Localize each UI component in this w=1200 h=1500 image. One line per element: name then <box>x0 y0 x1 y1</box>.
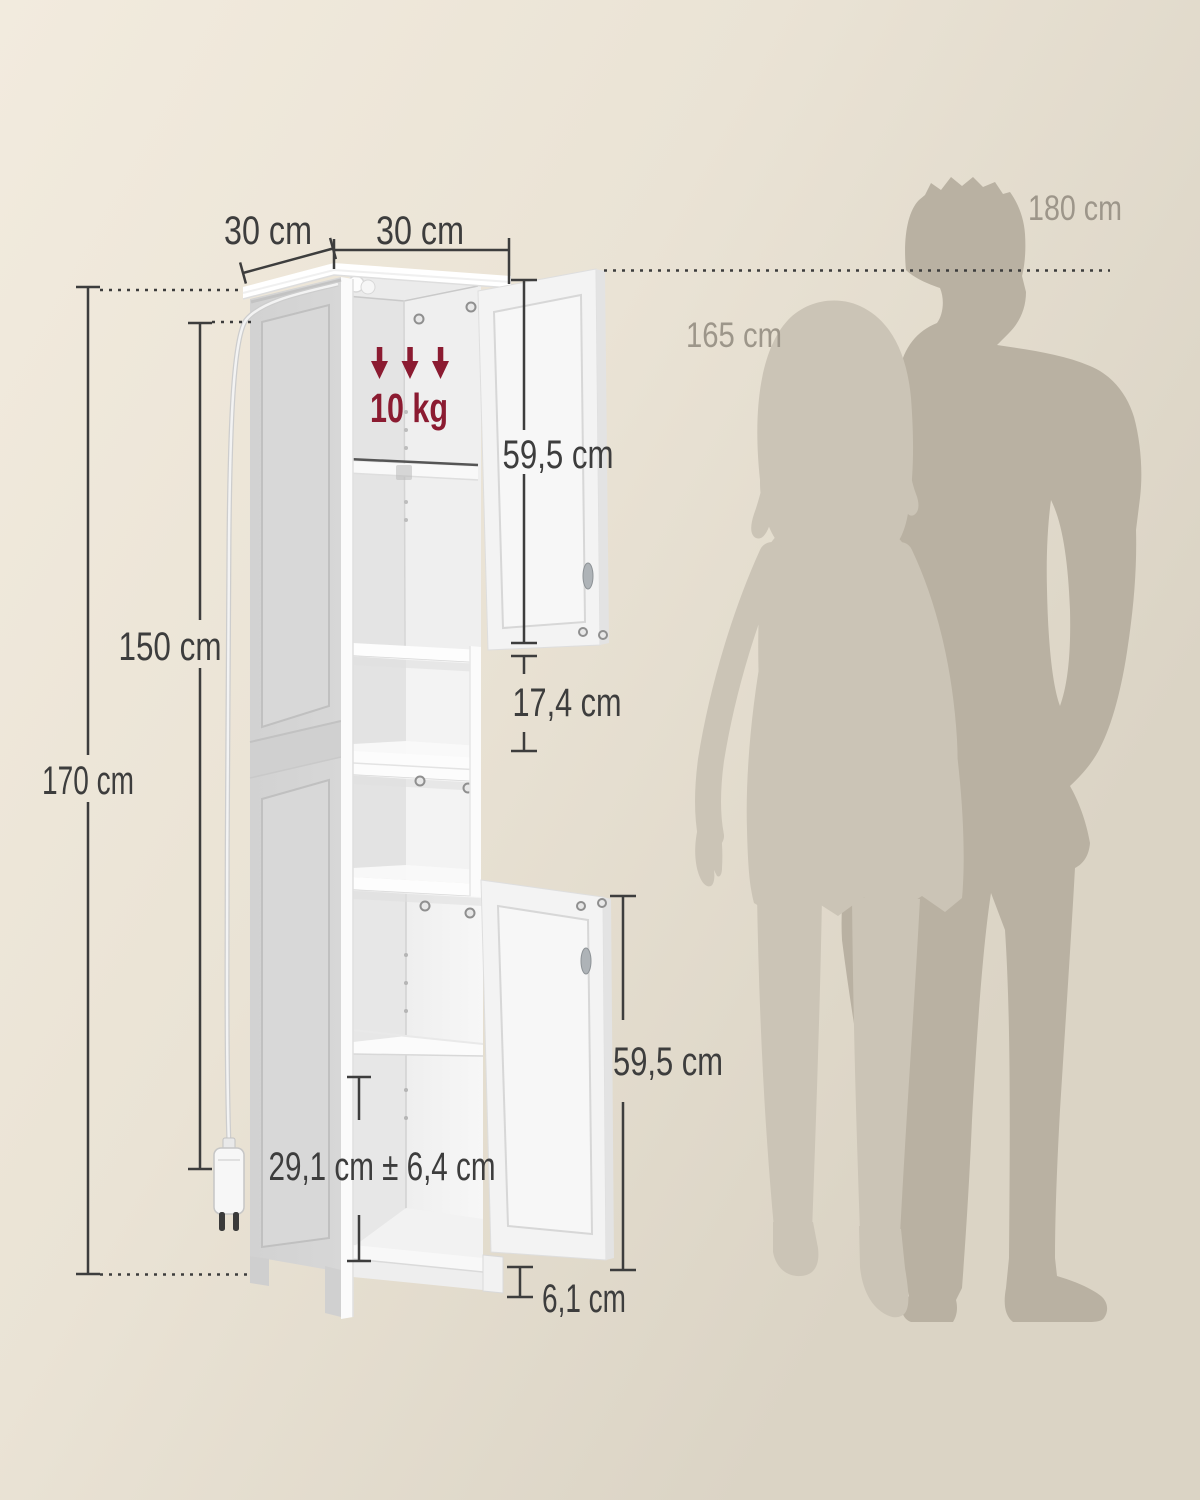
svg-text:59,5 cm: 59,5 cm <box>503 433 614 477</box>
svg-text:30 cm: 30 cm <box>224 209 312 253</box>
svg-text:150 cm: 150 cm <box>119 625 222 669</box>
svg-text:17,4 cm: 17,4 cm <box>513 681 622 725</box>
svg-text:165 cm: 165 cm <box>686 316 782 355</box>
svg-text:10 kg: 10 kg <box>370 385 448 431</box>
svg-text:29,1 cm ± 6,4 cm: 29,1 cm ± 6,4 cm <box>269 1145 496 1189</box>
svg-text:180 cm: 180 cm <box>1028 189 1122 228</box>
svg-text:59,5 cm: 59,5 cm <box>613 1040 723 1084</box>
svg-text:6,1 cm: 6,1 cm <box>542 1277 626 1321</box>
svg-text:170 cm: 170 cm <box>42 759 134 803</box>
svg-text:30 cm: 30 cm <box>376 209 464 253</box>
